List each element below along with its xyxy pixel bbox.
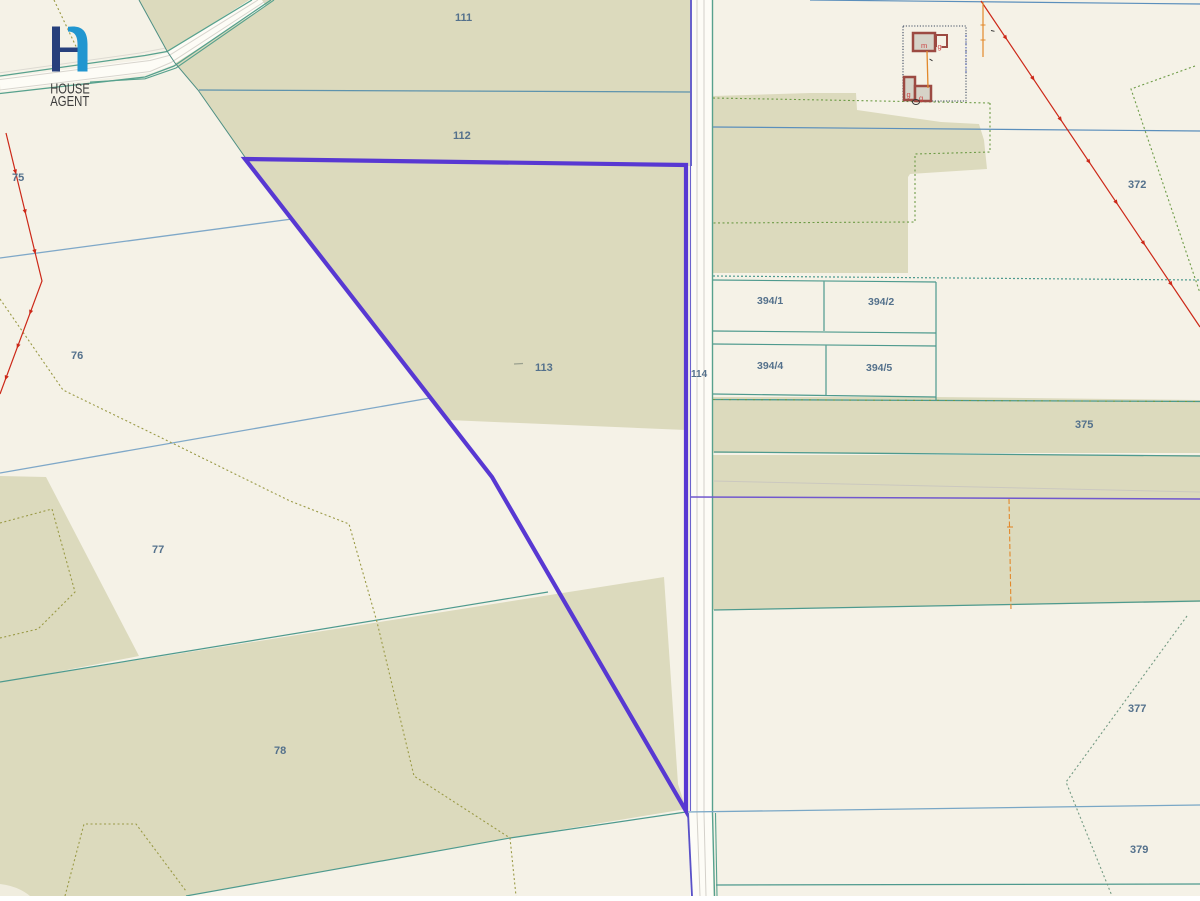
svg-text:112: 112 bbox=[453, 130, 471, 142]
svg-text:114: 114 bbox=[691, 369, 708, 380]
svg-text:372: 372 bbox=[1128, 179, 1146, 191]
svg-text:111: 111 bbox=[455, 12, 472, 24]
svg-text:g: g bbox=[907, 90, 911, 99]
svg-text:377: 377 bbox=[1128, 703, 1146, 715]
svg-text:g: g bbox=[919, 94, 923, 103]
svg-text:394/2: 394/2 bbox=[868, 296, 894, 308]
svg-text:375: 375 bbox=[1075, 419, 1093, 431]
svg-text:77: 77 bbox=[152, 544, 164, 556]
svg-text:394/4: 394/4 bbox=[757, 360, 783, 372]
svg-text:75: 75 bbox=[12, 172, 24, 184]
svg-text:394/1: 394/1 bbox=[757, 295, 783, 307]
svg-text:m: m bbox=[921, 41, 927, 50]
svg-text:76: 76 bbox=[71, 350, 83, 362]
svg-text:AGENT: AGENT bbox=[50, 94, 89, 110]
svg-text:g: g bbox=[938, 42, 942, 51]
svg-text:113: 113 bbox=[535, 362, 553, 374]
svg-text:379: 379 bbox=[1130, 844, 1148, 856]
svg-text:394/5: 394/5 bbox=[866, 362, 892, 374]
svg-text:78: 78 bbox=[274, 745, 286, 757]
